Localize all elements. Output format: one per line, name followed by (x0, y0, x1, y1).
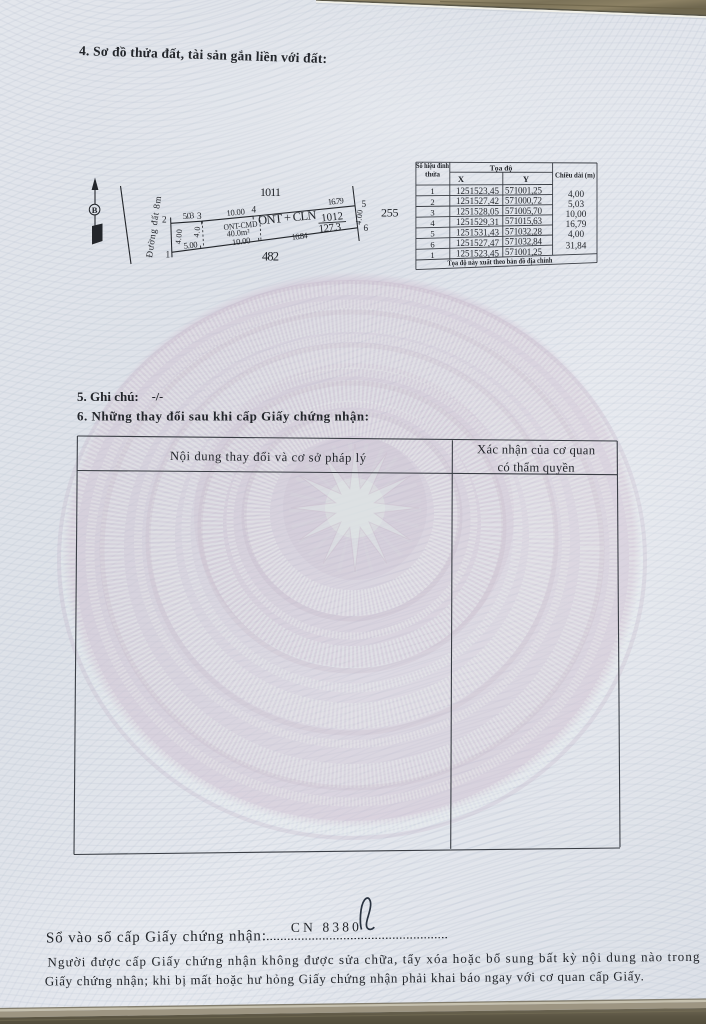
svg-text:1251523,45: 1251523,45 (456, 186, 500, 196)
svg-text:571001,25: 571001,25 (505, 185, 543, 195)
svg-text:thửa: thửa (425, 170, 440, 179)
svg-text:Tọa độ: Tọa độ (490, 163, 513, 172)
svg-text:X: X (458, 174, 465, 184)
svg-text:5,03: 5,03 (568, 199, 584, 209)
svg-text:5: 5 (362, 199, 367, 209)
svg-text:4.00: 4.00 (174, 229, 185, 245)
svg-text:571005,70: 571005,70 (505, 206, 543, 216)
svg-text:16,79: 16,79 (566, 219, 587, 229)
svg-text:5. Ghi chú:: 5. Ghi chú: (77, 389, 139, 404)
svg-text:3: 3 (197, 211, 202, 221)
svg-text:571032,28: 571032,28 (505, 226, 543, 236)
svg-text:4: 4 (252, 205, 257, 215)
svg-text:1: 1 (430, 250, 434, 260)
svg-text:255: 255 (381, 206, 399, 220)
svg-text:571015,63: 571015,63 (505, 216, 543, 226)
svg-text:571000,72: 571000,72 (505, 196, 542, 206)
svg-text:1: 1 (166, 250, 171, 260)
svg-text:571032,84: 571032,84 (505, 237, 543, 247)
svg-text:Chiều dài (m): Chiều dài (m) (555, 171, 595, 180)
svg-text:Sổ vào sổ cấp Giấy chứng nhận:: Sổ vào sổ cấp Giấy chứng nhận: (46, 928, 266, 946)
svg-text:6. Những thay đổi sau khi cấp: 6. Những thay đổi sau khi cấp Giấy chứng… (77, 409, 369, 424)
svg-text:2: 2 (162, 215, 167, 225)
svg-text:1: 1 (430, 186, 434, 196)
svg-text:Nội dung thay đổi và cơ sở phá: Nội dung thay đổi và cơ sở pháp lý (170, 449, 367, 465)
svg-text:B: B (92, 205, 98, 215)
svg-text:10.00: 10.00 (226, 206, 245, 218)
svg-text:4,00: 4,00 (568, 229, 584, 239)
svg-text:16.84: 16.84 (291, 230, 309, 242)
svg-text:5.03: 5.03 (182, 210, 194, 221)
svg-text:Y: Y (523, 174, 530, 184)
svg-text:10,00: 10,00 (566, 209, 587, 219)
svg-text:Xác nhận của cơ quan: Xác nhận của cơ quan (477, 442, 596, 457)
svg-text:4,00: 4,00 (568, 189, 584, 199)
svg-text:1251528,05: 1251528,05 (456, 207, 500, 217)
svg-text:1251527,47: 1251527,47 (456, 238, 500, 248)
svg-text:127.3: 127.3 (318, 221, 342, 235)
svg-text:31,84: 31,84 (566, 241, 587, 251)
svg-text:482: 482 (262, 250, 279, 264)
svg-text:1251527,42: 1251527,42 (456, 196, 499, 206)
svg-text:-/-: -/- (152, 389, 163, 403)
svg-text:1251531,43: 1251531,43 (456, 228, 500, 238)
svg-text:6: 6 (364, 223, 369, 233)
svg-text:2: 2 (430, 197, 434, 207)
svg-text:16.79: 16.79 (327, 195, 344, 206)
svg-text:5.00: 5.00 (183, 239, 198, 251)
svg-text:4.00: 4.00 (354, 209, 365, 225)
svg-text:4: 4 (430, 218, 435, 228)
svg-text:6: 6 (430, 239, 435, 249)
svg-text:1251529,31: 1251529,31 (456, 217, 499, 227)
svg-text:5: 5 (430, 229, 434, 239)
svg-text:4.0: 4.0 (192, 226, 202, 238)
svg-text:1011: 1011 (260, 185, 281, 199)
svg-text:có thẩm quyền: có thẩm quyền (497, 460, 575, 475)
svg-text:3: 3 (430, 207, 434, 217)
